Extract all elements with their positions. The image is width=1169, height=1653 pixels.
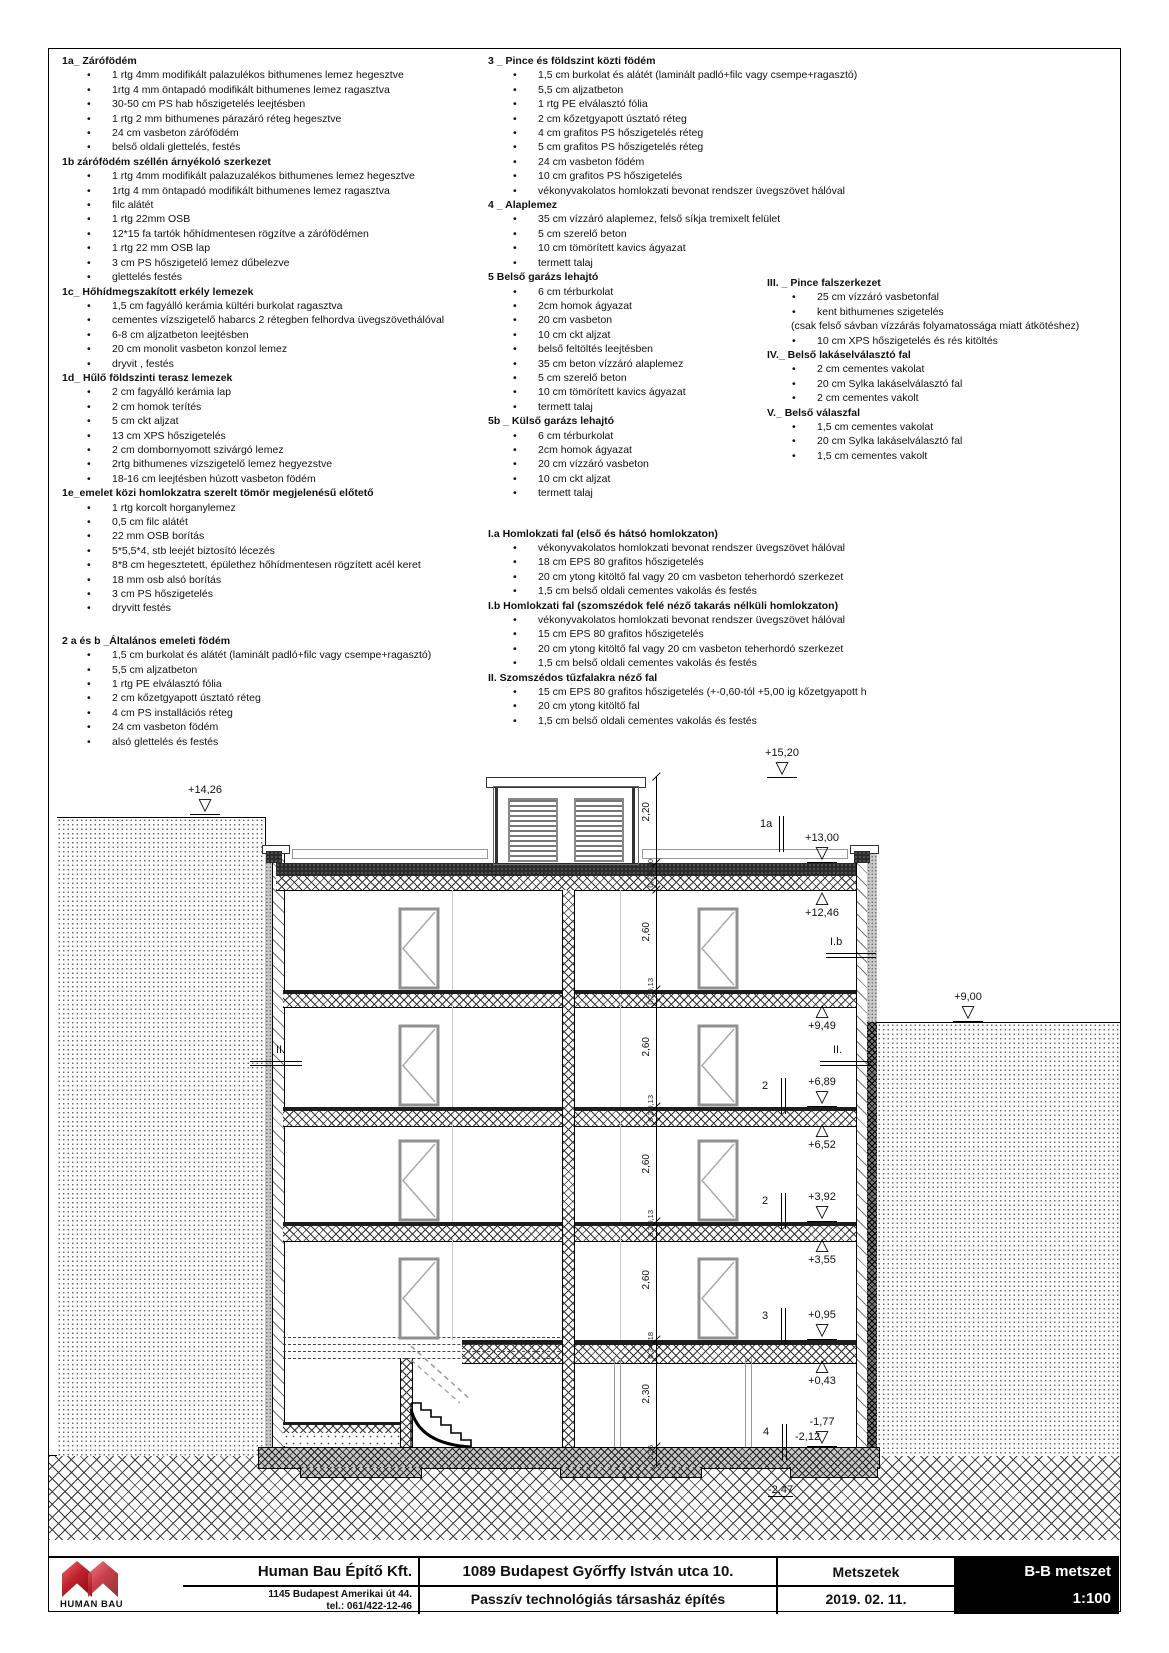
left-wall-insulation bbox=[265, 848, 272, 1448]
door-elevation bbox=[398, 1139, 440, 1227]
penthouse-post-right bbox=[632, 787, 635, 863]
level-triangle-icon: ▽ bbox=[930, 1004, 1006, 1020]
company-phone: tel.: 061/422-12-46 bbox=[326, 1601, 412, 1612]
elevation-marker: +0,95▽ bbox=[784, 1308, 860, 1340]
dimension-value-small: 0,24 bbox=[646, 873, 655, 888]
cut-line bbox=[826, 957, 876, 958]
sheet-type: Metszetek bbox=[778, 1564, 954, 1580]
elevation-marker: +6,89▽ bbox=[784, 1075, 860, 1107]
cut-line bbox=[779, 816, 780, 852]
elevation-value: +3,55 bbox=[784, 1253, 860, 1267]
door-elevation bbox=[697, 907, 739, 995]
title-block: HUMAN BAU Human Bau Építő Kft. 1145 Buda… bbox=[48, 1556, 1119, 1614]
interior-edge-line bbox=[620, 1122, 621, 1222]
section-cut-label: 4 bbox=[763, 1426, 769, 1438]
interior-edge-line bbox=[452, 1237, 453, 1340]
elevation-text: -2,47 bbox=[768, 1484, 793, 1497]
cut-line bbox=[781, 1193, 782, 1229]
level-triangle-icon: ▽ bbox=[784, 1089, 860, 1105]
interior-edge-line bbox=[452, 1122, 453, 1222]
penthouse-post-left bbox=[495, 787, 498, 863]
level-triangle-icon: △ bbox=[784, 1237, 860, 1253]
section-cut-label: 2 bbox=[762, 1080, 768, 1092]
roof-slab-band bbox=[276, 876, 856, 891]
elevation-marker: △+0,43 bbox=[784, 1358, 860, 1388]
interior-edge-line bbox=[452, 1003, 453, 1107]
cut-line bbox=[826, 953, 876, 954]
logo-mark-icon bbox=[88, 1561, 118, 1597]
dimension-value-small: 0,34 bbox=[646, 1344, 655, 1359]
foundation-step-1 bbox=[300, 1467, 422, 1478]
cut-line bbox=[785, 1193, 786, 1229]
basement-opening-line bbox=[614, 1358, 621, 1447]
elevation-value: +6,52 bbox=[784, 1138, 860, 1152]
cut-line bbox=[783, 816, 784, 852]
elevation-text: -2,12 bbox=[795, 1431, 820, 1443]
section-cut-label: 2 bbox=[762, 1195, 768, 1207]
level-triangle-icon: ▽ bbox=[784, 845, 860, 861]
elevation-value: +0,43 bbox=[784, 1374, 860, 1388]
cut-line bbox=[781, 1308, 782, 1344]
elevation-marker: +9,00▽ bbox=[930, 990, 1006, 1022]
dimension-value: 2,20 bbox=[641, 802, 652, 821]
door-elevation bbox=[398, 1257, 440, 1345]
project-name: Passzív technológiás társasház építés bbox=[420, 1591, 776, 1607]
elevation-marker: +13,00▽ bbox=[784, 831, 860, 863]
cut-line bbox=[781, 1078, 782, 1114]
project-address: 1089 Budapest Győrffy István utca 10. bbox=[420, 1563, 776, 1580]
company-address: 1145 Budapest Amerikai út 44. bbox=[268, 1589, 412, 1600]
cut-line bbox=[820, 1065, 872, 1066]
drawing-scale: 1:100 bbox=[1073, 1590, 1111, 1607]
right-wall-waterproofing-below bbox=[867, 1022, 877, 1447]
section-cut-label: II. bbox=[833, 1044, 842, 1056]
cut-line bbox=[782, 1424, 783, 1460]
basement-stairs-and-ramp bbox=[280, 1330, 580, 1460]
door-elevation bbox=[697, 1139, 739, 1227]
right-ground-block bbox=[877, 1022, 1120, 1456]
dimension-value: 2,60 bbox=[641, 922, 652, 941]
right-wall-insulation-above bbox=[867, 848, 877, 1022]
company-name: Human Bau Építő Kft. bbox=[258, 1563, 412, 1580]
door-elevation bbox=[398, 1024, 440, 1112]
dimension-value: 2,60 bbox=[641, 1154, 652, 1173]
section-cut-label: I.b bbox=[830, 936, 842, 948]
penthouse-louver-right bbox=[574, 798, 624, 862]
interior-edge-line bbox=[620, 1003, 621, 1107]
elevation-marker: +14,26▽ bbox=[167, 783, 243, 815]
door-elevation bbox=[697, 1024, 739, 1112]
dimension-value: 2,60 bbox=[641, 1270, 652, 1289]
roof-shade-strip-left bbox=[292, 849, 488, 859]
logo-text: HUMAN BAU bbox=[60, 1599, 123, 1610]
cut-line bbox=[250, 1061, 302, 1062]
level-triangle-icon: △ bbox=[784, 1122, 860, 1138]
title-block-row-divider bbox=[183, 1585, 954, 1587]
level-triangle-icon: ▽ bbox=[167, 797, 243, 813]
elevation-marker: △+9,49 bbox=[784, 1003, 860, 1033]
section-cut-label: II. bbox=[276, 1044, 285, 1056]
level-triangle-icon: ▽ bbox=[784, 1322, 860, 1338]
company-logo: HUMAN BAU bbox=[54, 1559, 179, 1613]
level-triangle-icon: △ bbox=[784, 890, 860, 906]
door-elevation bbox=[398, 907, 440, 995]
logo-mark-icon bbox=[62, 1561, 92, 1597]
sheet-date: 2019. 02. 11. bbox=[778, 1591, 954, 1607]
cut-line bbox=[250, 1065, 302, 1066]
section-name: B-B metszet bbox=[1024, 1563, 1111, 1580]
cut-line bbox=[785, 1308, 786, 1344]
level-triangle-icon: ▽ bbox=[784, 1204, 860, 1220]
elevation-marker: △+3,55 bbox=[784, 1237, 860, 1267]
cut-line bbox=[820, 1061, 872, 1062]
penthouse-louver-left bbox=[508, 798, 558, 862]
drawing-sheet: 1a_ Zárófödém1 rtg 4mm modifikált palazu… bbox=[0, 0, 1169, 1653]
interior-edge-line bbox=[452, 890, 453, 990]
interior-edge-line bbox=[620, 1237, 621, 1340]
elevation-value: +12,46 bbox=[784, 906, 860, 920]
cut-line bbox=[785, 1078, 786, 1114]
level-triangle-icon: ▽ bbox=[744, 760, 820, 776]
left-parapet-block bbox=[266, 851, 282, 863]
cut-line bbox=[786, 1424, 787, 1460]
basement-opening-line bbox=[745, 1358, 752, 1447]
building-section-drawing: +15,20▽+14,26▽+13,00▽△+12,46△+9,49+9,00▽… bbox=[0, 0, 1169, 1653]
foundation-step-3 bbox=[790, 1467, 878, 1478]
door-elevation bbox=[697, 1257, 739, 1345]
dimension-value: 2,30 bbox=[641, 1384, 652, 1403]
elevation-marker: △+6,52 bbox=[784, 1122, 860, 1152]
elevation-marker: +15,20▽ bbox=[744, 746, 820, 778]
neighbour-building-block bbox=[57, 817, 266, 1456]
interior-edge-line bbox=[620, 890, 621, 990]
elevation-marker: △+12,46 bbox=[784, 890, 860, 920]
level-triangle-icon: △ bbox=[784, 1358, 860, 1374]
dimension-value: 2,60 bbox=[641, 1037, 652, 1056]
section-cut-label: 1a bbox=[760, 818, 772, 830]
section-cut-label: 3 bbox=[762, 1310, 768, 1322]
elevation-marker: +3,92▽ bbox=[784, 1190, 860, 1222]
level-triangle-icon: △ bbox=[784, 1003, 860, 1019]
foundation-step-2 bbox=[560, 1467, 702, 1478]
sheet-id-cell: B-B metszet 1:100 bbox=[954, 1558, 1119, 1614]
elevation-value: +9,49 bbox=[784, 1019, 860, 1033]
